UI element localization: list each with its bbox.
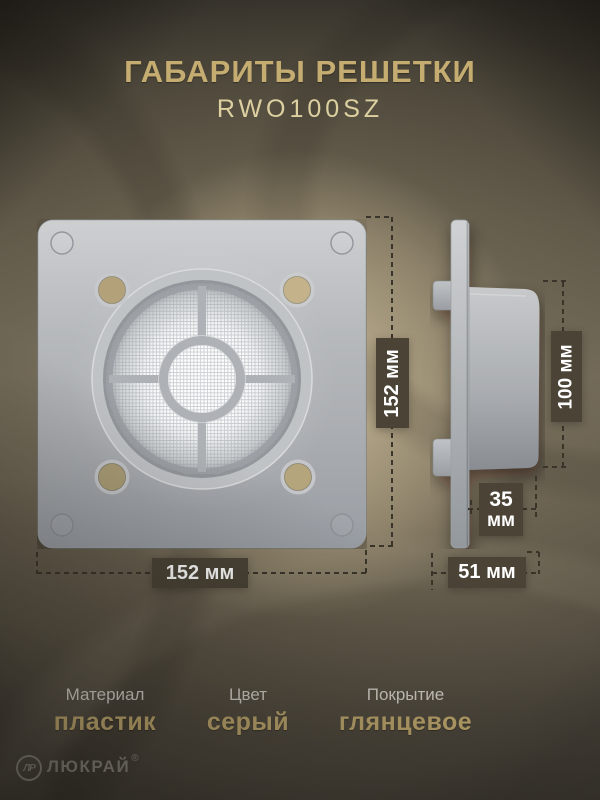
dim-total-depth-tick-right bbox=[538, 552, 540, 574]
model-number: RWO100SZ bbox=[0, 95, 600, 124]
dim-total-depth-tick-left bbox=[431, 553, 433, 590]
product-dimension-card: ГАБАРИТЫ РЕШЕТКИ RWO100SZ bbox=[0, 0, 600, 800]
dim-duct-height-tick-top bbox=[543, 280, 569, 282]
dimension-total-depth: 51 мм bbox=[448, 557, 526, 588]
brand-monogram-icon: ЛР bbox=[16, 755, 42, 781]
spec-coating-value: глянцевое bbox=[318, 708, 493, 737]
spec-coating: Покрытие глянцевое bbox=[318, 685, 493, 737]
brand-name: ЛЮКРАЙ bbox=[47, 757, 130, 777]
dimension-front-height: 152 мм bbox=[376, 338, 409, 428]
dimension-front-width: 152 мм bbox=[152, 558, 248, 588]
dim-duct-height-tick-bottom bbox=[543, 466, 569, 468]
spec-color: Цвет серый bbox=[163, 685, 333, 737]
side-flange bbox=[451, 220, 469, 548]
corner-screw-mark bbox=[331, 514, 353, 536]
dim-duct-depth-tick-right bbox=[535, 476, 537, 520]
spec-color-label: Цвет bbox=[163, 685, 333, 705]
dimension-duct-height: 100 мм bbox=[551, 331, 582, 422]
front-view-illustration bbox=[37, 219, 367, 549]
spec-color-value: серый bbox=[163, 708, 333, 737]
registered-mark-icon: ® bbox=[131, 753, 138, 764]
dimension-duct-depth: 35 мм bbox=[479, 483, 523, 536]
dim-front-height-tick-bottom bbox=[370, 545, 393, 547]
spec-coating-label: Покрытие bbox=[318, 685, 493, 705]
dim-total-depth-corner-right bbox=[527, 551, 539, 553]
dim-front-width-tick-left bbox=[36, 552, 38, 574]
corner-screw-mark bbox=[51, 514, 73, 536]
page-title: ГАБАРИТЫ РЕШЕТКИ bbox=[0, 54, 600, 90]
dim-front-height-tick-top bbox=[366, 216, 393, 218]
corner-screw-mark bbox=[331, 232, 353, 254]
dim-duct-depth-tick-left bbox=[470, 500, 472, 518]
corner-screw-mark bbox=[51, 232, 73, 254]
dim-front-width-tick-right bbox=[365, 550, 367, 574]
side-duct-body bbox=[467, 287, 540, 470]
brand-logo: ЛР ЛЮКРАЙ ® bbox=[16, 753, 139, 781]
